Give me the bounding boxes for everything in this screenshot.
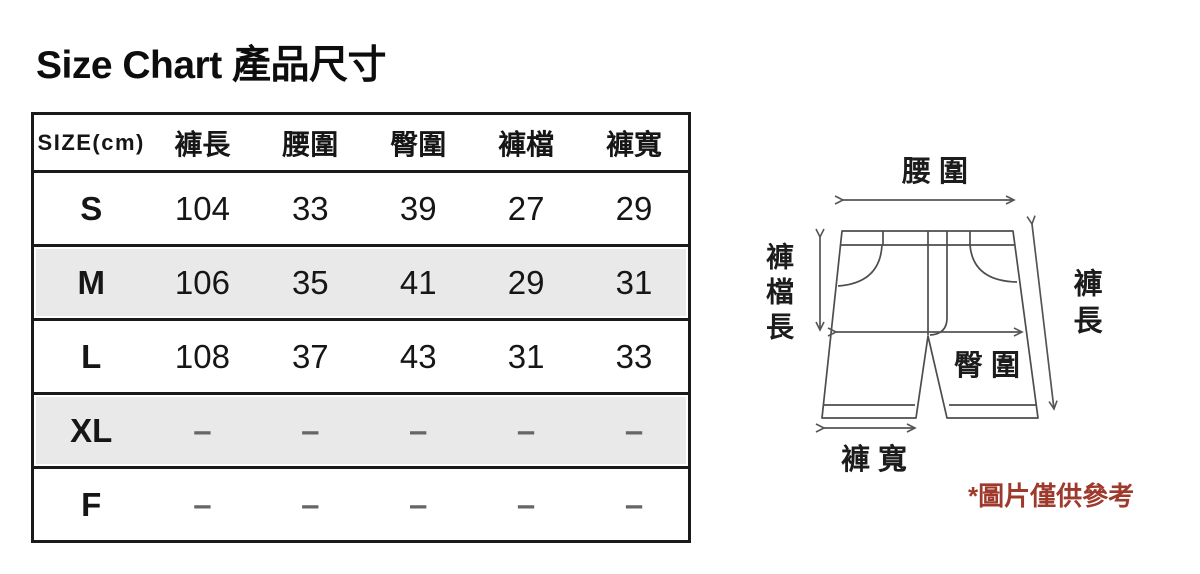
value-pants-width: – [580, 486, 688, 524]
size-label: L [34, 338, 148, 376]
pants-length-label: 褲長 [1066, 268, 1104, 342]
value-pants-width: 31 [580, 264, 688, 302]
value-pants-length: 106 [148, 264, 256, 302]
column-header-pants-length: 褲長 [148, 123, 256, 163]
measurement-arrows [820, 200, 1054, 428]
size-label: S [34, 190, 148, 228]
column-header-waist: 腰圍 [256, 123, 364, 163]
value-hip: 41 [364, 264, 472, 302]
table-row-f: F – – – – – [34, 466, 688, 540]
value-pants-length: – [148, 486, 256, 524]
pants-width-label: 褲 寬 [822, 436, 926, 478]
table-row-m: M 106 35 41 29 31 [34, 244, 688, 318]
value-hip: – [364, 486, 472, 524]
crotch-length-label: 褲檔長 [760, 242, 796, 347]
value-pants-length: 104 [148, 190, 256, 228]
size-label: XL [34, 412, 148, 450]
table-row-xl: XL – – – – – [34, 392, 688, 466]
column-header-crotch: 褲檔 [472, 123, 580, 163]
value-pants-length: 108 [148, 338, 256, 376]
value-crotch: – [472, 486, 580, 524]
value-crotch: 27 [472, 190, 580, 228]
size-table: SIZE(cm) 褲長 腰圍 臀圍 褲檔 褲寬 S 104 33 39 27 2… [31, 112, 691, 543]
value-pants-width: – [580, 412, 688, 450]
value-waist: 35 [256, 264, 364, 302]
size-chart-page: Size Chart 產品尺寸 SIZE(cm) 褲長 腰圍 臀圍 褲檔 褲寬 … [0, 0, 1200, 574]
page-title: Size Chart 產品尺寸 [36, 34, 386, 90]
shorts-measurement-diagram: 腰 圍 褲檔長 褲長 臀 圍 褲 寬 *圖片僅供參考 [730, 130, 1200, 560]
value-crotch: 31 [472, 338, 580, 376]
table-row-l: L 108 37 43 31 33 [34, 318, 688, 392]
column-header-hip: 臀圍 [364, 123, 472, 163]
value-pants-width: 33 [580, 338, 688, 376]
column-header-pants-width: 褲寬 [580, 123, 688, 163]
shorts-body [822, 231, 1038, 418]
table-row-s: S 104 33 39 27 29 [34, 170, 688, 244]
value-pants-length: – [148, 412, 256, 450]
value-waist: 33 [256, 190, 364, 228]
value-hip: 43 [364, 338, 472, 376]
column-header-size: SIZE(cm) [34, 130, 148, 156]
value-waist: 37 [256, 338, 364, 376]
value-hip: 39 [364, 190, 472, 228]
value-crotch: – [472, 412, 580, 450]
value-waist: – [256, 412, 364, 450]
size-label: F [34, 486, 148, 524]
reference-only-note: *圖片僅供參考 [968, 476, 1134, 513]
value-pants-width: 29 [580, 190, 688, 228]
value-hip: – [364, 412, 472, 450]
table-header-row: SIZE(cm) 褲長 腰圍 臀圍 褲檔 褲寬 [34, 115, 688, 170]
size-label: M [34, 264, 148, 302]
value-waist: – [256, 486, 364, 524]
hip-label: 臀 圍 [932, 342, 1042, 384]
value-crotch: 29 [472, 264, 580, 302]
waist-label: 腰 圍 [870, 148, 1000, 190]
